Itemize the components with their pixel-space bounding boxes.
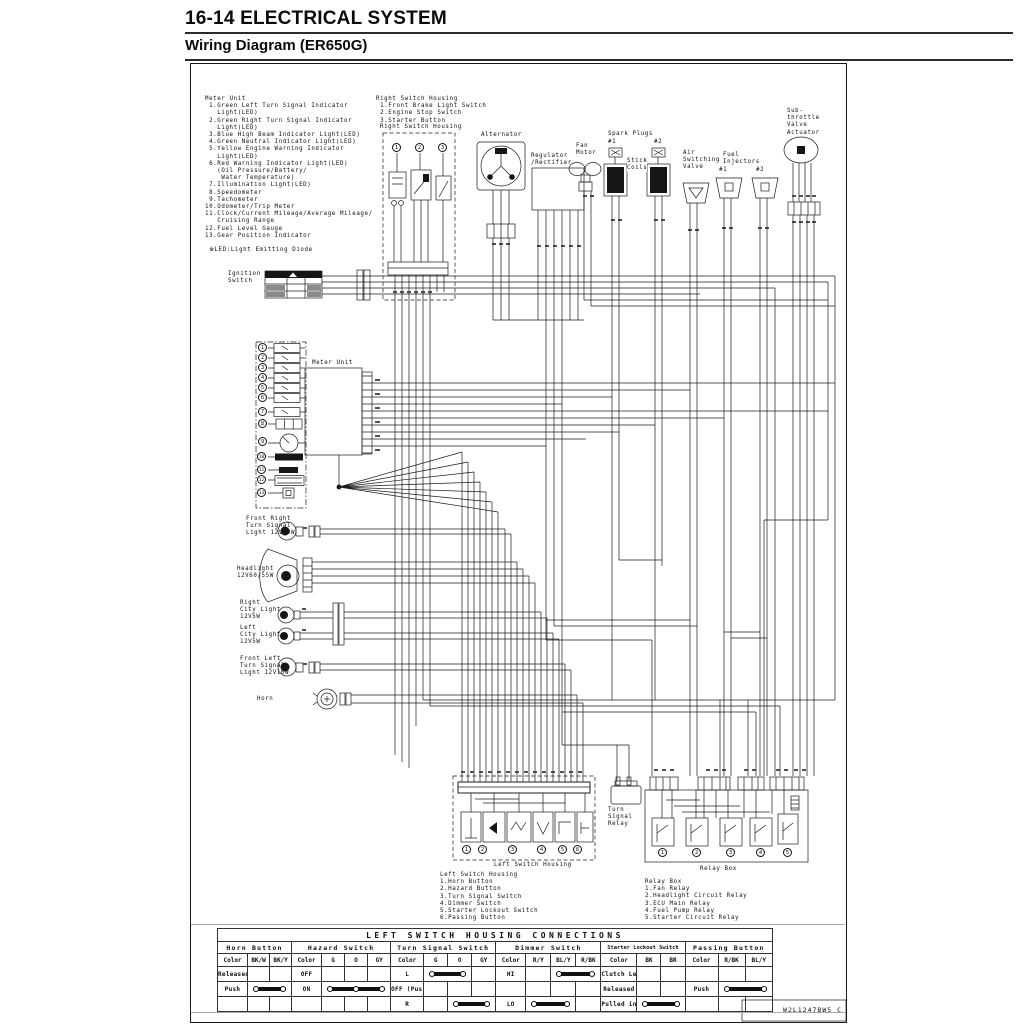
section-dimmer: Dimmer Switch [496, 942, 601, 954]
cell: Color [496, 954, 526, 967]
cell [292, 997, 322, 1012]
cell [424, 967, 472, 982]
table-row: Released OFF L HI Clutch Lever [218, 967, 773, 982]
injector-2-label: #2 [756, 167, 764, 174]
section-passing: Passing Button [685, 942, 773, 954]
cell [637, 982, 661, 997]
turn-signal-relay-label: Turn Signal Relay [608, 807, 633, 829]
spark-plugs-label: Spark Plugs [608, 131, 653, 138]
cell: L [391, 967, 424, 982]
injector-1-label: #1 [719, 167, 727, 174]
callout: 9 [258, 437, 267, 446]
connection-bar [531, 1002, 570, 1006]
callout: 1 [462, 845, 471, 854]
cell [551, 982, 576, 997]
sub-throttle-actuator-shape [784, 137, 820, 222]
connection-bar [642, 1002, 679, 1006]
cell: Released [601, 982, 637, 997]
callout: 4 [537, 845, 546, 854]
fan-motor-label: Fan Motor [576, 143, 596, 157]
cell [448, 982, 472, 997]
cell: OFF [292, 967, 322, 982]
cell: BL/Y [551, 954, 576, 967]
cell [685, 997, 718, 1012]
headlight-label: Headlight 12V60/55W [237, 566, 274, 580]
cell [496, 982, 526, 997]
cell [248, 982, 292, 997]
cell: Color [292, 954, 322, 967]
regulator-rectifier-label: Regulator /Rectifier [531, 153, 572, 167]
cell [718, 982, 772, 997]
cell: R/BK [718, 954, 745, 967]
left-switch-housing-legend: Left Switch Housing 1.Horn Button 2.Haza… [440, 872, 538, 922]
cell [424, 997, 448, 1012]
section-horn: Horn Button [218, 942, 292, 954]
callout: 13 [257, 488, 266, 497]
section-turn: Turn Signal Switch [391, 942, 496, 954]
cell: Pulled in [601, 997, 637, 1012]
horn-shape [313, 689, 351, 709]
turn-signal-relay-shape [611, 777, 641, 804]
cell: OFF (Push) [391, 982, 424, 997]
callout: 4 [756, 848, 765, 857]
callout: 6 [573, 845, 582, 854]
cell: BK [637, 954, 661, 967]
callout: 5 [258, 383, 267, 392]
cell [661, 967, 685, 982]
wire-mesh [312, 191, 835, 782]
cell: Push [685, 982, 718, 997]
sub-throttle-label: Sub- throttle Valve Actuator [787, 108, 820, 137]
section-starter: Starter Lockout Switch [601, 942, 685, 954]
cell [685, 967, 718, 982]
callout: 6 [258, 393, 267, 402]
meter-unit-legend: Meter Unit 1.Green Left Turn Signal Indi… [205, 96, 373, 254]
left-city-light-label: Left City Light 12V5W [240, 625, 281, 647]
cell [270, 967, 292, 982]
cell [248, 997, 270, 1012]
callout: 2 [478, 845, 487, 854]
spark-plug-2-label: #2 [654, 139, 662, 146]
cell: R [391, 997, 424, 1012]
section-hazard: Hazard Switch [292, 942, 391, 954]
wiring-diagram-svg [0, 0, 1024, 1024]
right-switch-housing-shape [383, 133, 455, 768]
callout: 3 [258, 363, 267, 372]
callout: 2 [692, 848, 701, 857]
callout: 3 [438, 143, 447, 152]
right-switch-housing-legend: Right Switch Housing 1.Front Brake Light… [376, 96, 486, 125]
callout: 2 [415, 143, 424, 152]
cell: G [322, 954, 345, 967]
cell [322, 982, 391, 997]
cell: GY [368, 954, 391, 967]
cell [551, 967, 601, 982]
callout: 3 [508, 845, 517, 854]
cell: Push [218, 982, 248, 997]
right-switch-housing-box-label: Right Switch Housing [380, 124, 462, 131]
cell: BR [661, 954, 685, 967]
cell [345, 997, 368, 1012]
cell [270, 997, 292, 1012]
callout: 4 [258, 373, 267, 382]
callout: 1 [258, 343, 267, 352]
left-switch-housing-caption: Left Switch Housing [494, 862, 572, 869]
table-row: R LO Pulled in [218, 997, 773, 1012]
cell [745, 967, 772, 982]
cell [718, 967, 745, 982]
air-switching-valve-shape [683, 183, 709, 230]
cell: Color [685, 954, 718, 967]
spark-plug-1-label: #1 [608, 139, 616, 146]
front-left-turn-signal-label: Front Left Turn Signal Light 12V10W [240, 656, 289, 678]
cell [745, 997, 772, 1012]
callout: 1 [658, 848, 667, 857]
connection-bar [453, 1002, 490, 1006]
cell: R/BK [576, 954, 601, 967]
table-title: LEFT SWITCH HOUSING CONNECTIONS [218, 929, 773, 942]
cell: O [448, 954, 472, 967]
cell [526, 967, 551, 982]
divider [191, 924, 845, 925]
stick-coils-label: Stick Coils [627, 158, 647, 172]
cell [661, 982, 685, 997]
connection-bar [724, 987, 767, 991]
cell: G [424, 954, 448, 967]
connection-bar [556, 972, 595, 976]
color-header-row: Color BK/W BK/Y Color G O GY Color G O G… [218, 954, 773, 967]
cell: Color [601, 954, 637, 967]
cell: BL/Y [745, 954, 772, 967]
cell [576, 997, 601, 1012]
right-city-light-label: Right City Light 12V5W [240, 600, 281, 622]
alternator-shape [477, 142, 525, 244]
cell [368, 997, 391, 1012]
connection-bar [429, 972, 466, 976]
callout: 10 [257, 452, 266, 461]
cell [718, 997, 745, 1012]
callout: 5 [783, 848, 792, 857]
cell [526, 997, 576, 1012]
ignition-switch-label: Ignition Switch [228, 271, 261, 285]
cell: ON [292, 982, 322, 997]
callout: 3 [726, 848, 735, 857]
cell [472, 982, 496, 997]
cell: Color [218, 954, 248, 967]
callout: 12 [257, 475, 266, 484]
horn-label: Horn [257, 696, 273, 703]
cell: BK/W [248, 954, 270, 967]
cell [322, 967, 345, 982]
connection-bar [253, 987, 286, 991]
air-switching-valve-label: Air Switching Valve [683, 150, 720, 172]
cell [368, 967, 391, 982]
relay-box-caption: Relay Box [700, 866, 737, 873]
fuel-injectors-shape [716, 178, 778, 228]
cell [448, 997, 496, 1012]
callout: 2 [258, 353, 267, 362]
manual-page: 16-14 ELECTRICAL SYSTEM Wiring Diagram (… [0, 0, 1024, 1024]
cell [424, 982, 448, 997]
cell: R/Y [526, 954, 551, 967]
callout: 8 [258, 419, 267, 428]
cell: BK/Y [270, 954, 292, 967]
cell [637, 967, 661, 982]
cell: HI [496, 967, 526, 982]
ignition-switch-shape [265, 270, 370, 300]
cell: Clutch Lever [601, 967, 637, 982]
divider [191, 1012, 845, 1013]
cell [322, 997, 345, 1012]
regulator-rectifier-shape [532, 168, 584, 246]
cell [576, 982, 601, 997]
cell: Released [218, 967, 248, 982]
cell [526, 982, 551, 997]
callout: 11 [257, 465, 266, 474]
callout: 7 [258, 407, 267, 416]
connection-bar [327, 987, 385, 991]
callout: 5 [558, 845, 567, 854]
cell [472, 967, 496, 982]
city-lights-shape [278, 603, 344, 645]
cell [218, 997, 248, 1012]
left-switch-housing-connections-table: LEFT SWITCH HOUSING CONNECTIONS Horn But… [217, 928, 773, 1012]
alternator-label: Alternator [481, 132, 522, 139]
callout: 1 [392, 143, 401, 152]
cell: GY [472, 954, 496, 967]
fan-motor-shape [569, 163, 601, 197]
cell: LO [496, 997, 526, 1012]
cell: O [345, 954, 368, 967]
table-row: Push ON OFF (Push) Released Push [218, 982, 773, 997]
meter-unit-box-label: Meter Unit [312, 360, 353, 367]
fuel-injectors-label: Fuel Injectors [723, 152, 760, 166]
front-right-turn-signal-label: Front Right Turn Signal Light 12V10W [246, 516, 295, 538]
cell [345, 967, 368, 982]
cell [248, 967, 270, 982]
relay-box-legend: Relay Box 1.Fan Relay 2.Headlight Circui… [645, 879, 747, 922]
cell: Color [391, 954, 424, 967]
cell [637, 997, 685, 1012]
